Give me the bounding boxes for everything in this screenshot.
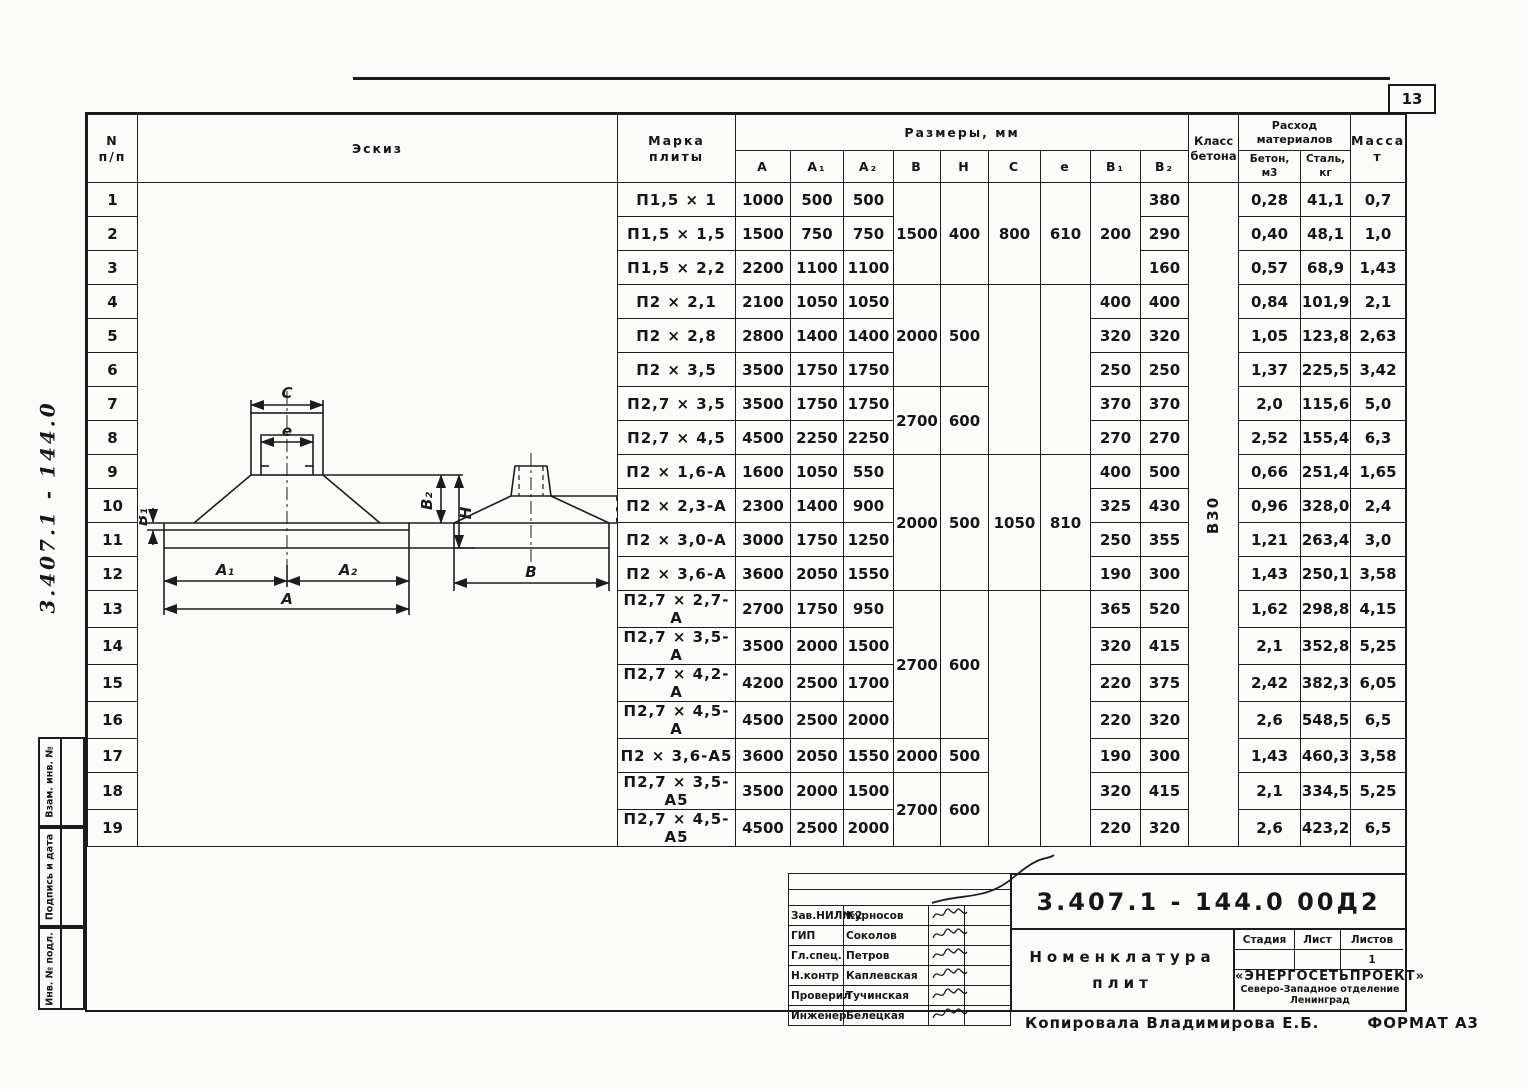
plate-mark: П1,5 × 1,5: [618, 217, 736, 251]
table-cell: 320: [1141, 810, 1189, 847]
table-cell: 2700: [894, 773, 941, 847]
table-cell: 500: [791, 183, 844, 217]
table-cell: 320: [1141, 319, 1189, 353]
table-cell: 1750: [791, 387, 844, 421]
approval-date: [965, 966, 1011, 986]
approval-date: [965, 946, 1011, 966]
concrete-class-cell: В30: [1189, 183, 1239, 847]
table-cell: 320: [1141, 702, 1189, 739]
approval-signature: [929, 966, 965, 986]
table-cell: 0,28: [1239, 183, 1301, 217]
table-cell: 1250: [844, 523, 894, 557]
table-cell: 1,43: [1239, 739, 1301, 773]
table-cell: 3500: [736, 773, 791, 810]
table-cell: 1400: [791, 489, 844, 523]
dim-label-h: H: [457, 506, 475, 519]
table-cell: 68,9: [1301, 251, 1351, 285]
table-cell: 1,0: [1351, 217, 1406, 251]
stage-label: Стадия: [1235, 930, 1295, 950]
signature: [931, 946, 969, 962]
table-cell: 500: [844, 183, 894, 217]
concrete-class-value: В30: [1205, 495, 1223, 533]
plate-mark: П2,7 × 3,5-А: [618, 628, 736, 665]
table-cell: 2000: [894, 455, 941, 591]
table-cell: 2,63: [1351, 319, 1406, 353]
title-block: Зав.НИЛ№2Курносов ГИПСоколов Гл.спец.Пет…: [788, 873, 1407, 1012]
row-number: 17: [88, 739, 138, 773]
sheets-label: Листов: [1341, 930, 1403, 950]
stage-value: [1235, 950, 1295, 970]
row-number: 11: [88, 523, 138, 557]
table-cell: 2500: [791, 665, 844, 702]
approval-date: [965, 926, 1011, 946]
sidebar-label-vzam: Взам. инв. №: [45, 746, 56, 817]
table-cell: 2000: [844, 810, 894, 847]
table-cell: 334,5: [1301, 773, 1351, 810]
table-cell: 48,1: [1301, 217, 1351, 251]
table-cell: 3000: [736, 523, 791, 557]
table-cell: 270: [1091, 421, 1141, 455]
sidebar-label-podpis: Подпись и дата: [45, 834, 56, 920]
table-cell: 4500: [736, 421, 791, 455]
approval-name: Каплевская: [844, 966, 929, 986]
drawing-frame: Nп/п Эскиз Маркаплиты Размеры, мм Классб…: [85, 112, 1407, 1012]
table-cell: 1000: [736, 183, 791, 217]
table-cell: 4500: [736, 702, 791, 739]
table-cell: 1750: [844, 353, 894, 387]
table-cell: 2,1: [1239, 773, 1301, 810]
table-cell: 610: [1041, 183, 1091, 285]
table-cell: 1100: [844, 251, 894, 285]
table-cell: 1050: [844, 285, 894, 319]
table-cell: 300: [1141, 739, 1189, 773]
row-number: 2: [88, 217, 138, 251]
stage-sheet-block: Стадия Лист Листов 1 «ЭНЕРГОСЕТЬПРОЕКТ» …: [1233, 928, 1407, 1012]
table-cell: 365: [1091, 591, 1141, 628]
header-dim-b: B: [894, 151, 941, 183]
plate-mark: П2,7 × 4,5: [618, 421, 736, 455]
row-number: 5: [88, 319, 138, 353]
table-cell: 1500: [844, 773, 894, 810]
table-cell: 115,6: [1301, 387, 1351, 421]
approval-name: Соколов: [844, 926, 929, 946]
plate-mark: П2,7 × 3,5: [618, 387, 736, 421]
table-cell: 270: [1141, 421, 1189, 455]
dim-label-e: e: [281, 422, 291, 440]
row-number: 13: [88, 591, 138, 628]
header-concrete-class: Классбетона: [1189, 115, 1239, 183]
table-cell: 1,05: [1239, 319, 1301, 353]
table-cell: 320: [1091, 773, 1141, 810]
table-cell: 263,4: [1301, 523, 1351, 557]
approval-signature: [929, 946, 965, 966]
plate-mark: П2,7 × 4,5-А: [618, 702, 736, 739]
row-number: 18: [88, 773, 138, 810]
table-cell: 400: [1141, 285, 1189, 319]
table-cell: 800: [989, 183, 1041, 285]
table-cell: [989, 591, 1041, 847]
table-cell: 1750: [844, 387, 894, 421]
table-cell: 298,8: [1301, 591, 1351, 628]
table-cell: 1750: [791, 523, 844, 557]
table-cell: 1,21: [1239, 523, 1301, 557]
table-cell: 500: [941, 739, 989, 773]
sidebar-box-vzam: Взам. инв. №: [38, 737, 85, 827]
table-cell: 3500: [736, 628, 791, 665]
plate-mark: П2 × 1,6-А: [618, 455, 736, 489]
table-cell: 1,37: [1239, 353, 1301, 387]
sidebar-box-inv: Инв. № подл.: [38, 927, 85, 1010]
approval-date: [965, 906, 1011, 926]
header-sketch: Эскиз: [138, 115, 618, 183]
table-cell: 415: [1141, 773, 1189, 810]
table-cell: 2050: [791, 557, 844, 591]
dim-label-c: C: [281, 384, 292, 402]
table-cell: 0,96: [1239, 489, 1301, 523]
plate-sketch: C e B₁ B₂ H A₁ A₂ A B 100: [139, 203, 617, 826]
signature: [931, 1006, 969, 1022]
table-cell: [1041, 285, 1091, 455]
table-cell: 4,15: [1351, 591, 1406, 628]
approval-role: Гл.спец.: [789, 946, 844, 966]
table-cell: 123,8: [1301, 319, 1351, 353]
table-cell: 41,1: [1301, 183, 1351, 217]
table-cell: 2800: [736, 319, 791, 353]
table-cell: 250: [1141, 353, 1189, 387]
divider: [60, 739, 62, 825]
table-cell: 600: [941, 387, 989, 455]
divider: [60, 929, 62, 1008]
table-cell: 375: [1141, 665, 1189, 702]
table-cell: 200: [1091, 183, 1141, 285]
organization-name: «ЭНЕРГОСЕТЬПРОЕКТ»: [1235, 970, 1405, 985]
table-cell: 220: [1091, 702, 1141, 739]
table-cell: 2000: [791, 628, 844, 665]
table-cell: 1550: [844, 739, 894, 773]
table-cell: 3,58: [1351, 739, 1406, 773]
table-cell: 355: [1141, 523, 1189, 557]
sketch-cell: C e B₁ B₂ H A₁ A₂ A B 100: [138, 183, 618, 847]
table-cell: 1,43: [1351, 251, 1406, 285]
plate-mark: П2 × 3,6-А5: [618, 739, 736, 773]
table-row: [789, 874, 1011, 890]
dim-label-a: A: [280, 590, 293, 608]
table-cell: 1100: [791, 251, 844, 285]
sheets-value: 1: [1341, 950, 1403, 970]
table-cell: 4200: [736, 665, 791, 702]
table-cell: 250,1: [1301, 557, 1351, 591]
table-cell: 1500: [894, 183, 941, 285]
table-cell: 415: [1141, 628, 1189, 665]
bottom-caption: Копировала Владимирова Е.Б. ФОРМАТ А3: [1025, 1014, 1479, 1032]
plate-mark: П2 × 2,3-А: [618, 489, 736, 523]
table-cell: 3500: [736, 353, 791, 387]
table-cell: 400: [1091, 285, 1141, 319]
drawing-sheet: 13 3.407.1 - 144.0 Взам. инв. № Подпись …: [0, 0, 1527, 1089]
table-cell: 6,5: [1351, 810, 1406, 847]
table-cell: 2100: [736, 285, 791, 319]
table-cell: 325: [1091, 489, 1141, 523]
row-number: 19: [88, 810, 138, 847]
row-number: 10: [88, 489, 138, 523]
table-cell: 1600: [736, 455, 791, 489]
table-cell: 2000: [791, 773, 844, 810]
table-cell: 2050: [791, 739, 844, 773]
table-cell: 0,40: [1239, 217, 1301, 251]
header-mark: Маркаплиты: [618, 115, 736, 183]
plate-mark: П2,7 × 3,5-А5: [618, 773, 736, 810]
header-concrete-line2: м3: [1239, 167, 1300, 180]
table-row: ПроверилТучинская: [789, 986, 1011, 1006]
plate-mark: П2,7 × 4,2-А: [618, 665, 736, 702]
table-cell: 6,3: [1351, 421, 1406, 455]
table-row: Н.контрКаплевская: [789, 966, 1011, 986]
table-cell: 1400: [844, 319, 894, 353]
table-cell: 220: [1091, 810, 1141, 847]
table-cell: [1041, 591, 1091, 847]
organization: «ЭНЕРГОСЕТЬПРОЕКТ» Северо-Западное отдел…: [1235, 970, 1405, 1007]
table-cell: 2700: [736, 591, 791, 628]
table-row: Зав.НИЛ№2Курносов: [789, 906, 1011, 926]
header-consumption: Расходматериалов: [1239, 115, 1351, 151]
table-cell: 382,3: [1301, 665, 1351, 702]
table-cell: 400: [1091, 455, 1141, 489]
table-cell: 1050: [989, 455, 1041, 591]
header-mass: Масса,т: [1351, 115, 1406, 183]
organization-city: Ленинград: [1235, 996, 1405, 1007]
table-cell: 2300: [736, 489, 791, 523]
dim-label-b: B: [525, 563, 536, 581]
approval-signature: [929, 906, 965, 926]
header-steel-line2: кг: [1301, 167, 1350, 180]
table-cell: 250: [1091, 353, 1141, 387]
table-cell: 3,58: [1351, 557, 1406, 591]
approval-name: Белецкая: [844, 1006, 929, 1026]
plate-mark: П2 × 3,6-А: [618, 557, 736, 591]
document-number: 3.407.1 - 144.0 00Д2: [1010, 873, 1407, 930]
table-cell: 2700: [894, 591, 941, 739]
dim-label-100: 100: [613, 494, 617, 525]
table-cell: 1750: [791, 591, 844, 628]
approval-date: [965, 1006, 1011, 1026]
table-cell: 0,57: [1239, 251, 1301, 285]
table-cell: 190: [1091, 557, 1141, 591]
table-cell: 250: [1091, 523, 1141, 557]
header-dim-c: C: [989, 151, 1041, 183]
table-row: [789, 890, 1011, 906]
table-cell: 950: [844, 591, 894, 628]
plate-mark: П2,7 × 4,5-А5: [618, 810, 736, 847]
table-cell: 2250: [844, 421, 894, 455]
table-cell: 1,62: [1239, 591, 1301, 628]
row-number: 9: [88, 455, 138, 489]
row-number: 8: [88, 421, 138, 455]
table-cell: 370: [1141, 387, 1189, 421]
plate-mark: П2 × 2,1: [618, 285, 736, 319]
table-cell: 1550: [844, 557, 894, 591]
table-cell: 0,84: [1239, 285, 1301, 319]
table-cell: 600: [941, 591, 989, 739]
table-cell: 1,43: [1239, 557, 1301, 591]
sheet-top-border: [353, 77, 1390, 80]
header-sizes: Размеры, мм: [736, 115, 1189, 151]
table-cell: 500: [941, 285, 989, 387]
dim-label-a2: A₂: [337, 561, 357, 579]
table-row: ГИПСоколов: [789, 926, 1011, 946]
table-cell: 2,1: [1351, 285, 1406, 319]
table-cell: 3500: [736, 387, 791, 421]
approval-name: Петров: [844, 946, 929, 966]
plate-mark: П1,5 × 1: [618, 183, 736, 217]
table-cell: 2,52: [1239, 421, 1301, 455]
approval-name: Курносов: [844, 906, 929, 926]
table-cell: 1400: [791, 319, 844, 353]
table-cell: 2000: [894, 285, 941, 387]
table-cell: 160: [1141, 251, 1189, 285]
header-dim-a: A₁: [791, 151, 844, 183]
table-cell: 300: [1141, 557, 1189, 591]
table-cell: 1500: [736, 217, 791, 251]
table-cell: 2,0: [1239, 387, 1301, 421]
table-cell: 500: [1141, 455, 1189, 489]
drawing-title-line2: плит: [1092, 974, 1153, 992]
plate-mark: П2 × 3,0-А: [618, 523, 736, 557]
table-cell: 550: [844, 455, 894, 489]
signature: [931, 986, 969, 1002]
table-cell: 2000: [894, 739, 941, 773]
table-cell: 3600: [736, 739, 791, 773]
divider: [60, 829, 62, 925]
dim-label-b1: B₁: [139, 508, 151, 526]
table-cell: 423,2: [1301, 810, 1351, 847]
table-cell: 1750: [791, 353, 844, 387]
signature: [931, 966, 969, 982]
header-concrete-line1: Бетон,: [1239, 153, 1300, 166]
table-cell: 328,0: [1301, 489, 1351, 523]
table-cell: 750: [791, 217, 844, 251]
approval-role: Зав.НИЛ№2: [789, 906, 844, 926]
approval-role: Н.контр: [789, 966, 844, 986]
table-cell: 3600: [736, 557, 791, 591]
row-number: 1: [88, 183, 138, 217]
format-note: ФОРМАТ А3: [1367, 1014, 1479, 1032]
plate-mark: П2,7 × 2,7-А: [618, 591, 736, 628]
header-steel-kg: Сталь,кг: [1301, 151, 1351, 183]
approval-role: ГИП: [789, 926, 844, 946]
table-cell: 2500: [791, 702, 844, 739]
table-cell: 2,6: [1239, 810, 1301, 847]
sidebar-label-inv: Инв. № подл.: [45, 932, 56, 1006]
approval-signature: [929, 1006, 965, 1026]
approval-signature: [929, 986, 965, 1006]
header-row-number: Nп/п: [88, 115, 138, 183]
table-cell: 2200: [736, 251, 791, 285]
row-number: 12: [88, 557, 138, 591]
row-number: 3: [88, 251, 138, 285]
approval-table: Зав.НИЛ№2Курносов ГИПСоколов Гл.спец.Пет…: [788, 873, 1011, 1026]
approval-signature: [929, 926, 965, 946]
table-cell: 290: [1141, 217, 1189, 251]
side-doc-number: 3.407.1 - 144.0: [18, 378, 78, 636]
table-cell: 900: [844, 489, 894, 523]
table-cell: 2,42: [1239, 665, 1301, 702]
table-cell: 750: [844, 217, 894, 251]
signature: [931, 926, 969, 942]
table-cell: 548,5: [1301, 702, 1351, 739]
table-cell: 0,7: [1351, 183, 1406, 217]
header-steel-line1: Сталь,: [1301, 153, 1350, 166]
row-number: 7: [88, 387, 138, 421]
table-cell: 190: [1091, 739, 1141, 773]
table-cell: 3,42: [1351, 353, 1406, 387]
sheet-label: Лист: [1295, 930, 1341, 950]
table-cell: 155,4: [1301, 421, 1351, 455]
table-cell: 352,8: [1301, 628, 1351, 665]
drawing-title-line1: Номенклатура: [1029, 948, 1215, 966]
table-cell: 320: [1091, 319, 1141, 353]
sheet-value: [1295, 950, 1341, 970]
table-cell: 220: [1091, 665, 1141, 702]
table-cell: 1,65: [1351, 455, 1406, 489]
header-dim-h: H: [941, 151, 989, 183]
table-cell: 2250: [791, 421, 844, 455]
row-number: 15: [88, 665, 138, 702]
table-cell: 1500: [844, 628, 894, 665]
dim-label-b2: B₂: [418, 492, 436, 510]
row-number: 14: [88, 628, 138, 665]
row-number: 16: [88, 702, 138, 739]
row-number: 4: [88, 285, 138, 319]
approval-role: Проверил: [789, 986, 844, 1006]
approval-date: [965, 986, 1011, 1006]
approval-name: Тучинская: [844, 986, 929, 1006]
table-cell: 6,05: [1351, 665, 1406, 702]
table-cell: 2,4: [1351, 489, 1406, 523]
table-row: Гл.спец.Петров: [789, 946, 1011, 966]
table-cell: 4500: [736, 810, 791, 847]
table-row: ИнженерБелецкая: [789, 1006, 1011, 1026]
table-cell: 5,25: [1351, 628, 1406, 665]
table-cell: 0,66: [1239, 455, 1301, 489]
plate-mark: П2 × 3,5: [618, 353, 736, 387]
header-dim-a: A₂: [844, 151, 894, 183]
table-cell: 2,6: [1239, 702, 1301, 739]
table-cell: 370: [1091, 387, 1141, 421]
table-row: 1: [88, 183, 1406, 217]
sheet-number: 13: [1388, 84, 1436, 114]
table-cell: 500: [941, 455, 989, 591]
table-cell: 460,3: [1301, 739, 1351, 773]
signature: [931, 906, 969, 922]
sidebar-box-podpis: Подпись и дата: [38, 827, 85, 927]
drawing-title: Номенклатура плит: [1010, 928, 1235, 1012]
header-dim-e: e: [1041, 151, 1091, 183]
table-cell: 320: [1091, 628, 1141, 665]
dim-label-a1: A₁: [214, 561, 233, 579]
header-dim-b: B₂: [1141, 151, 1189, 183]
table-cell: 2000: [844, 702, 894, 739]
table-cell: 5,25: [1351, 773, 1406, 810]
header-dim-b: B₁: [1091, 151, 1141, 183]
table-cell: 3,0: [1351, 523, 1406, 557]
table-cell: 251,4: [1301, 455, 1351, 489]
table-cell: 2,1: [1239, 628, 1301, 665]
row-number: 6: [88, 353, 138, 387]
table-cell: 400: [941, 183, 989, 285]
header-concrete-m3: Бетон,м3: [1239, 151, 1301, 183]
table-cell: 1050: [791, 285, 844, 319]
table-cell: 6,5: [1351, 702, 1406, 739]
